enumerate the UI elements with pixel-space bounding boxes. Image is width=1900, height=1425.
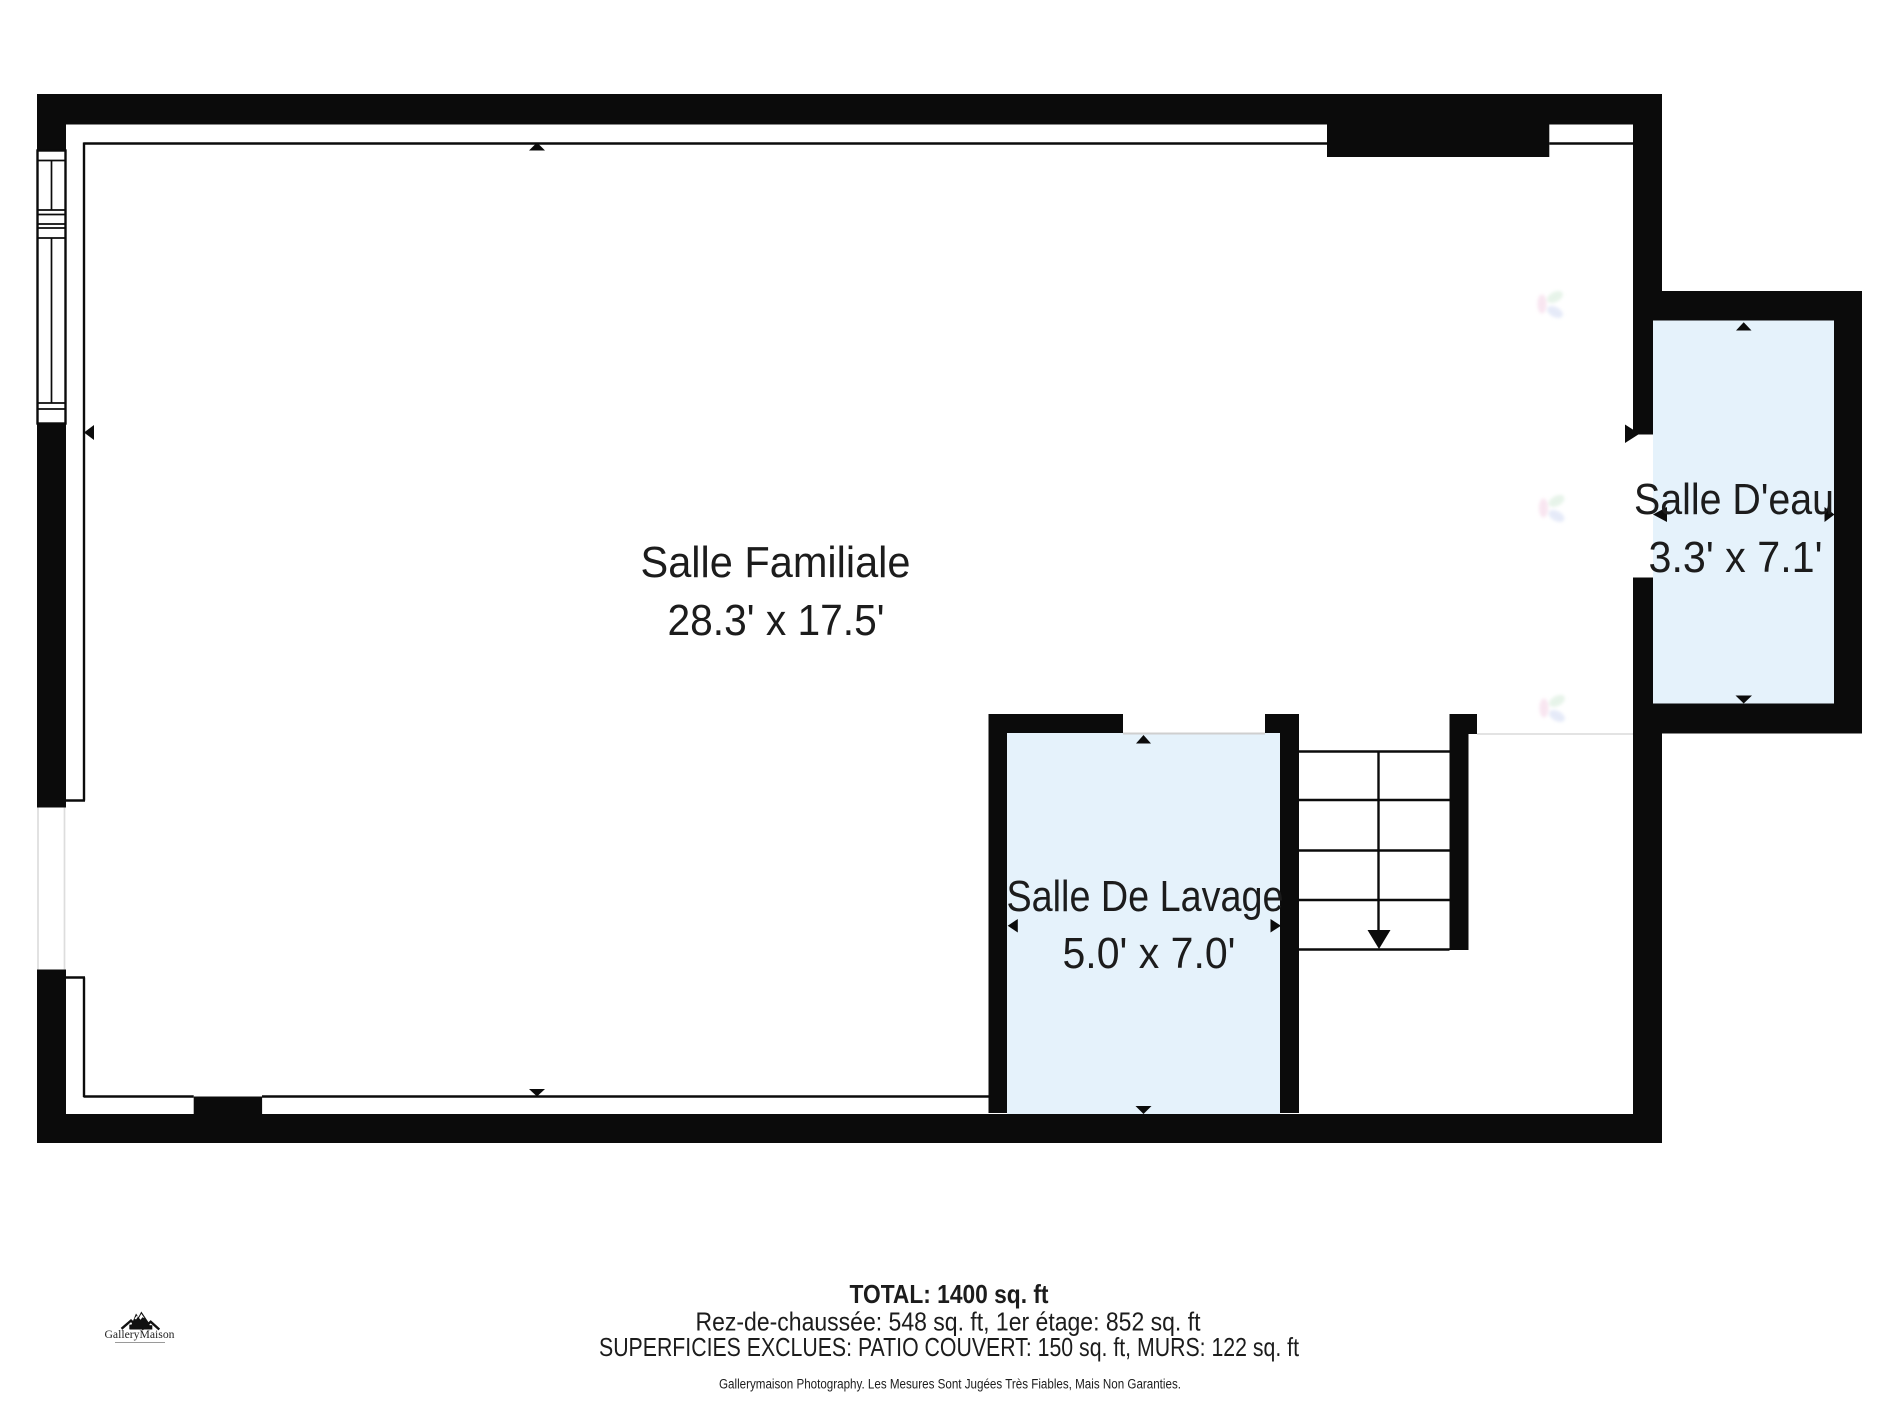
svg-text:Salle D'eau: Salle D'eau [1634,475,1834,524]
svg-text:Salle De Lavage: Salle De Lavage [1007,872,1284,921]
svg-text:Gallerymaison Photography. Les: Gallerymaison Photography. Les Mesures S… [719,1377,1181,1392]
svg-text:SUPERFICIES EXCLUES: PATIO COU: SUPERFICIES EXCLUES: PATIO COUVERT: 150 … [599,1332,1300,1362]
svg-text:3.3' x 7.1': 3.3' x 7.1' [1649,533,1823,582]
svg-text:GalleryMaison: GalleryMaison [105,1327,175,1341]
svg-text:Salle Familiale: Salle Familiale [641,538,911,587]
svg-text:5.0' x 7.0': 5.0' x 7.0' [1063,929,1236,978]
svg-text:TOTAL: 1400 sq. ft: TOTAL: 1400 sq. ft [850,1279,1049,1309]
svg-text:28.3' x 17.5': 28.3' x 17.5' [668,596,885,645]
